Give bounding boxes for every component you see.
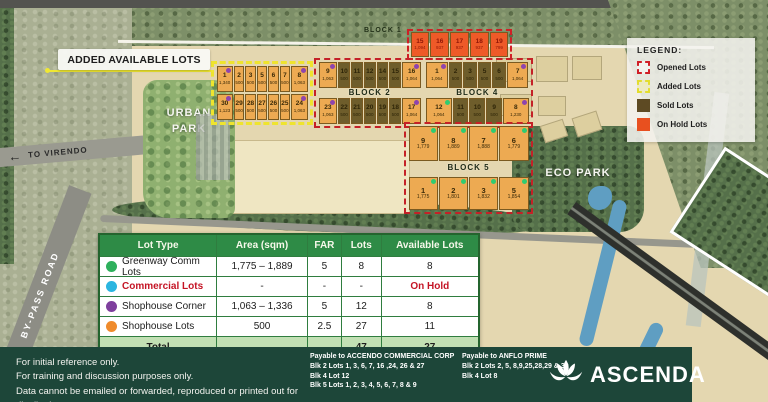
purple-dot-icon [330,64,335,69]
lot-8: 81,230 [503,98,528,124]
payable-accendo-lines: Blk 2 Lots 1, 3, 6, 7, 16 ,24, 26 & 27Bl… [310,362,460,391]
building-footprint [572,56,602,80]
lot-type-dot-icon [106,281,117,292]
building-footprint [538,96,566,116]
table-cell: 500 [217,317,308,337]
table-cell: FAR [308,235,342,257]
lot-15: 151,094 [411,32,430,57]
block4-label: BLOCK 4 [426,88,529,98]
legend-item-label: On Hold Lots [657,120,707,129]
eco-park-label: ECO PARK [530,166,626,182]
block5-label: BLOCK 5 [408,163,529,175]
purple-dot-icon [301,68,306,73]
lot-2: 2500 [449,62,463,88]
block4: 11,064250035005500650071,064 BLOCK 4 121… [426,62,529,124]
green-dot-icon [461,128,466,133]
table-cell: Available Lots [382,235,478,257]
block4-top-row: 11,064250035005500650071,064 [426,62,529,88]
to-virendo-label: TO VIRENDO [28,145,88,159]
legend-item: Added Lots [637,80,745,93]
lot-type-label: Commercial Lots [122,281,203,292]
lot-2: 21,801 [439,177,468,210]
block2-label: BLOCK 2 [318,88,421,98]
lot-12: 121,064 [426,98,451,124]
lot-1: 11,064 [426,62,448,88]
added-lots-zone: 11,3402500350055006500750081,063 301,123… [211,61,313,125]
lot-6: 61,779 [499,126,528,161]
text-line: For initial reference only. [16,356,306,370]
block2: 91,0631050011500125001450015500161,064 B… [318,62,421,124]
green-dot-icon [445,100,450,105]
lot-1: 11,340 [217,66,233,92]
legend-item-label: Opened Lots [657,63,706,72]
table-cell: 11 [382,317,478,337]
table-cell: Greenway Comm Lots [100,257,217,277]
lot-24: 241,063 [291,94,307,120]
table-cell: - [308,277,342,297]
table-cell: On Hold [382,277,478,297]
onhold-lots-swatch-icon [637,118,650,131]
purple-dot-icon [226,68,231,73]
legend-item: Sold Lots [637,99,745,112]
lot-type-dot-icon [106,261,117,272]
text-line: Blk 4 Lot 12 [310,372,460,382]
block1-onhold-zone: 151,09416937179371893719799 [407,29,512,60]
table-cell: Shophouse Lots [100,317,217,337]
lot-7: 7500 [280,66,290,92]
building-footprint [572,110,603,137]
legend-panel: LEGEND: Opened LotsAdded LotsSold LotsOn… [627,38,755,142]
legend-item: Opened Lots [637,61,745,74]
lot-summary-table: Lot TypeArea (sqm)FARLotsAvailable LotsG… [98,233,480,359]
lot-16: 161,064 [402,62,421,88]
lot-19: 19500 [377,98,389,124]
table-cell: - [217,277,308,297]
table-cell: 5 [308,257,342,277]
lot-16: 16937 [430,32,449,57]
lot-type-label: Greenway Comm Lots [122,256,216,278]
block5-bottom-row: 11,77521,80131,83251,854 [408,177,529,210]
lot-11: 11500 [453,98,469,124]
green-dot-icon [431,128,436,133]
block2-bottom-row: 231,0632250021500205001950018500171,064 [318,98,421,124]
purple-dot-icon [414,100,419,105]
block2-top-row: 91,0631050011500125001450015500161,064 [318,62,421,88]
table-cell: - [342,277,382,297]
lot-17: 171,064 [402,98,421,124]
lot-3: 31,832 [469,177,498,210]
block4-bottom-row: 121,0641150010500950081,230 [426,98,529,124]
lot-6: 6500 [268,66,278,92]
purple-dot-icon [301,96,306,101]
table-cell: 8 [342,257,382,277]
open-parcel [232,140,410,214]
blocks-2-4-zone: 91,0631050011500125001450015500161,064 B… [314,58,533,128]
text-line: Blk 2 Lots 1, 3, 6, 7, 16 ,24, 26 & 27 [310,362,460,372]
left-tree-strip [0,8,14,264]
opened-lots-swatch-icon [637,61,650,74]
table-cell: 1,063 – 1,336 [217,297,308,317]
lot-20: 20500 [364,98,376,124]
table-row: Shophouse Corner1,063 – 1,3365128 [100,297,478,317]
legend-item: On Hold Lots [637,118,745,131]
green-dot-icon [491,179,496,184]
lot-8: 81,889 [439,126,468,161]
callout-line [48,70,214,72]
text-line: Data cannot be emailed or forwarded, rep… [16,385,306,402]
lot-10: 10500 [338,62,350,88]
site-masterplan-slide: BY-PASS ROAD ← TO VIRENDO URBAN PARK ECO… [0,0,768,402]
lot-30: 301,123 [217,94,233,120]
block5-top-row: 91,77981,88971,88861,779 [408,126,529,161]
legend-items: Opened LotsAdded LotsSold LotsOn Hold Lo… [637,61,745,131]
green-dot-icon [522,128,527,133]
table-cell: 8 [382,257,478,277]
added-lots-bottom-row: 301,1232950028500275002650025500241,063 [216,94,308,120]
lot-18: 18500 [389,98,401,124]
lot-10: 10500 [469,98,485,124]
legend-item-label: Sold Lots [657,101,693,110]
lot-23: 231,063 [319,98,338,124]
table-cell: Lots [342,235,382,257]
lot-5: 51,854 [499,177,528,210]
green-dot-icon [522,179,527,184]
text-line: For training and discussion purposes onl… [16,370,306,384]
lot-type-dot-icon [106,321,117,332]
lot-12: 12500 [364,62,376,88]
lot-29: 29500 [234,94,244,120]
brand-logo: ASCENDA [548,352,692,398]
lot-3: 3500 [245,66,255,92]
purple-dot-icon [414,64,419,69]
purple-dot-icon [521,64,526,69]
table-cell: 1,775 – 1,889 [217,257,308,277]
table-cell: 12 [342,297,382,317]
table-cell: Area (sqm) [217,235,308,257]
lot-27: 27500 [257,94,267,120]
added-available-lots-callout: ADDED AVAILABLE LOTS [58,49,210,70]
building-footprint [536,56,568,82]
lot-14: 14500 [377,62,389,88]
lot-type-dot-icon [106,301,117,312]
table-cell: 8 [382,297,478,317]
lot-3: 3500 [463,62,477,88]
disclaimer-text: For initial reference only.For training … [16,356,306,402]
building-footprint [540,119,568,144]
lot-7: 71,064 [507,62,529,88]
table-row: Greenway Comm Lots1,775 – 1,889588 [100,257,478,277]
payable-accendo: Payable to ACCENDO COMMERCIAL CORP Blk 2… [310,352,460,391]
block1-label: BLOCK 1 [364,27,402,34]
block1-onhold-row: 151,09416937179371893719799 [410,32,509,57]
legend-item-label: Added Lots [657,82,701,91]
lot-15: 15500 [389,62,401,88]
block5-zone: 91,77981,88971,88861,779 BLOCK 5 11,7752… [404,122,533,214]
lot-9: 91,779 [409,126,438,161]
added-lots-top-row: 11,3402500350055006500750081,063 [216,66,308,92]
table-header-row: Lot TypeArea (sqm)FARLotsAvailable Lots [100,235,478,257]
lot-26: 26500 [268,94,278,120]
lot-22: 22500 [338,98,350,124]
table-cell: 27 [342,317,382,337]
lot-9: 9500 [486,98,502,124]
lot-28: 28500 [245,94,255,120]
purple-dot-icon [330,100,335,105]
table-cell: 5 [308,297,342,317]
lot-9: 91,063 [319,62,338,88]
left-arrow-icon: ← [8,149,22,163]
legend-title: LEGEND: [637,45,745,55]
table-cell: Commercial Lots [100,277,217,297]
lot-7: 71,888 [469,126,498,161]
lot-type-label: Shophouse Corner [122,301,206,312]
lot-5: 5500 [257,66,267,92]
table-cell: 2.5 [308,317,342,337]
lot-type-label: Shophouse Lots [122,321,194,332]
lot-5: 5500 [478,62,492,88]
callout-dot [45,68,50,73]
added-lots-swatch-icon [637,80,650,93]
lot-2: 2500 [234,66,244,92]
lot-17: 17937 [450,32,469,57]
lot-8: 81,063 [291,66,307,92]
purple-dot-icon [441,64,446,69]
table-cell: Shophouse Corner [100,297,217,317]
sold-lots-swatch-icon [637,99,650,112]
green-dot-icon [431,179,436,184]
lot-25: 25500 [280,94,290,120]
payable-accendo-title: Payable to ACCENDO COMMERCIAL CORP [310,352,460,362]
callout-text: ADDED AVAILABLE LOTS [67,54,200,66]
lot-21: 21500 [351,98,363,124]
lot-19: 19799 [490,32,509,57]
table-cell: Lot Type [100,235,217,257]
table-row: Shophouse Lots5002.52711 [100,317,478,337]
green-dot-icon [491,128,496,133]
purple-dot-icon [226,96,231,101]
text-line: Blk 5 Lots 1, 2, 3, 4, 5, 6, 7, 8 & 9 [310,381,460,391]
lot-18: 18937 [470,32,489,57]
lot-11: 11500 [351,62,363,88]
table-row: Commercial Lots---On Hold [100,277,478,297]
lotus-icon [548,359,584,391]
lot-1: 11,775 [409,177,438,210]
green-dot-icon [461,179,466,184]
lot-6: 6500 [492,62,506,88]
purple-dot-icon [522,100,527,105]
brand-name: ASCENDA [590,362,706,388]
